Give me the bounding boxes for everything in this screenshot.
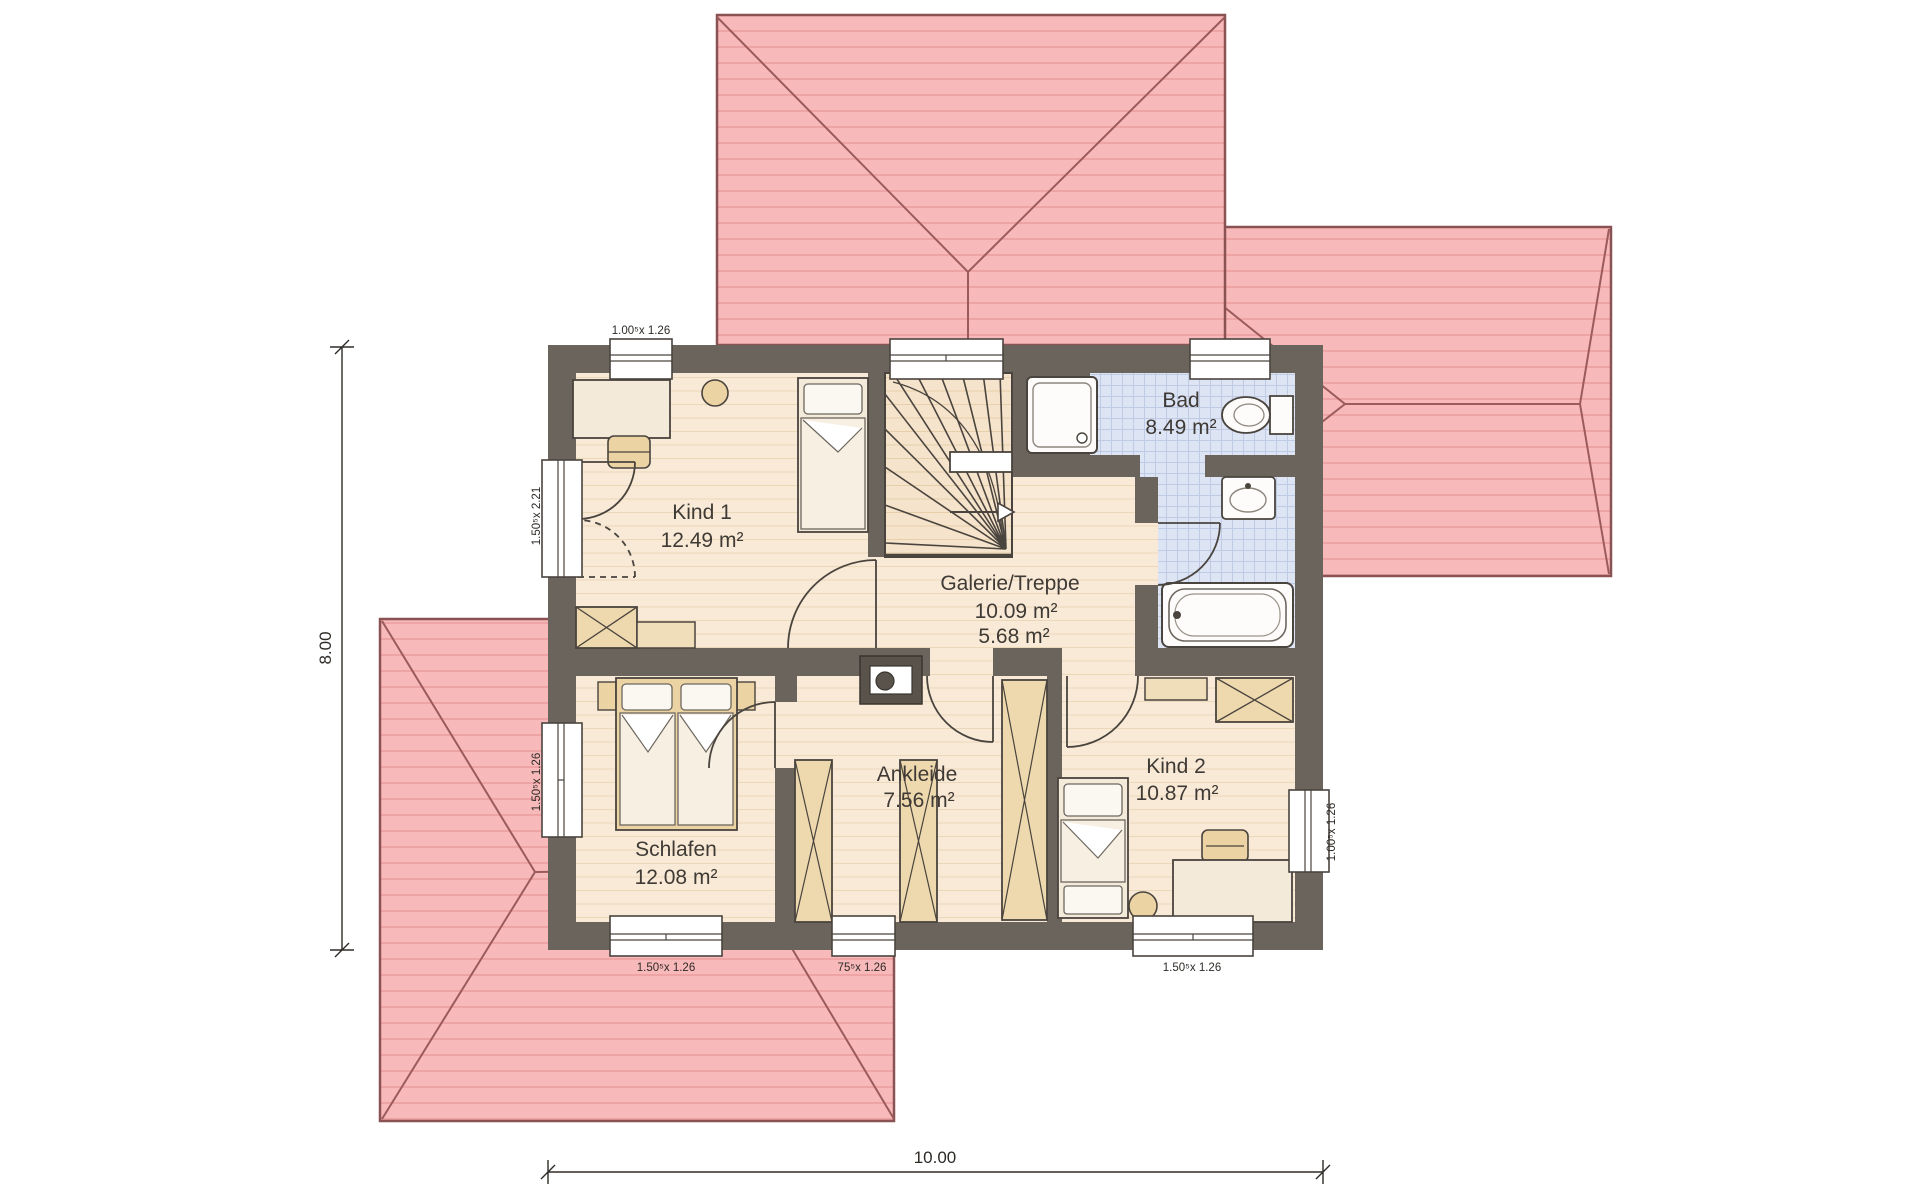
kind2-desk <box>1173 860 1292 922</box>
dimension-width-label: 10.00 <box>914 1148 957 1167</box>
window-label-top: 1.00⁵x 1.26 <box>612 325 670 337</box>
stair-landing <box>950 452 1012 472</box>
floorplan-page: Kind 1 12.49 m² Galerie/Treppe 10.09 m² … <box>0 0 1920 1200</box>
kind2-shelf <box>1145 678 1207 700</box>
kind1-desk <box>573 380 670 438</box>
bathtub-tap <box>1173 611 1181 619</box>
ankleide-area: 7.56 m² <box>883 789 954 812</box>
kind2-area: 10.87 m² <box>1136 782 1219 805</box>
bathtub <box>1162 583 1293 647</box>
kind1-area: 12.49 m² <box>661 529 744 552</box>
ankleide-label: Ankleide <box>877 763 958 786</box>
floorplan-canvas: Kind 1 12.49 m² Galerie/Treppe 10.09 m² … <box>0 0 1920 1200</box>
toilet <box>1222 396 1293 434</box>
window-label-bottom-ankleide: 75⁵x 1.26 <box>838 962 887 974</box>
kind2-bed <box>1058 778 1128 918</box>
kind1-label: Kind 1 <box>672 501 732 524</box>
window-label-left-door: 1.50⁵x 2.21 <box>531 487 543 545</box>
galerie-area2: 5.68 m² <box>978 625 1049 648</box>
schlafen-area: 12.08 m² <box>635 866 718 889</box>
kind1-bed <box>798 378 868 532</box>
window-label-left-schlafen: 1.50⁵x 1.26 <box>531 753 543 811</box>
shower-drain <box>1077 433 1087 443</box>
window-label-right-kind2: 1.00⁵x 1.26 <box>1326 803 1338 861</box>
kind2-label: Kind 2 <box>1146 755 1206 778</box>
nightstand-left <box>598 682 616 710</box>
basin-tap <box>1245 483 1251 489</box>
dimension-height-label: 8.00 <box>316 631 335 664</box>
double-bed <box>616 678 737 830</box>
roof-top <box>717 15 1225 345</box>
chimney <box>860 656 922 704</box>
bad-label: Bad <box>1162 389 1199 412</box>
window-label-bottom-kind2: 1.50⁵x 1.26 <box>1163 962 1221 974</box>
kind1-shelf <box>637 622 695 648</box>
kind1-stool <box>702 380 728 406</box>
shower <box>1027 377 1097 453</box>
schlafen-label: Schlafen <box>635 838 717 861</box>
washbasin <box>1222 477 1275 519</box>
schlafen-furniture <box>598 678 755 830</box>
galerie-area1: 10.09 m² <box>975 600 1058 623</box>
window-label-bottom-schlafen: 1.50⁵x 1.26 <box>637 962 695 974</box>
bad-area: 8.49 m² <box>1145 416 1216 439</box>
galerie-label: Galerie/Treppe <box>940 572 1079 595</box>
